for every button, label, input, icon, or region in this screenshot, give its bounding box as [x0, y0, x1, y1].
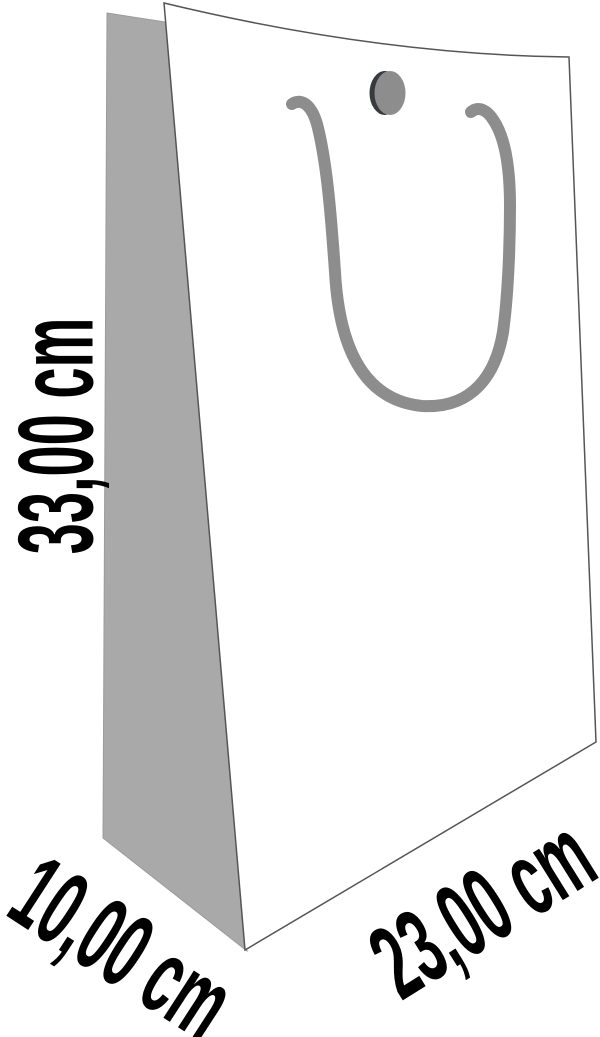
dimension-label-height: 33,00 cm: [3, 318, 109, 555]
grommet-face: [375, 71, 406, 115]
grommet-button: [370, 71, 406, 115]
diagram-canvas: 33,00 cm 10,00 cm 23,00 cm: [0, 0, 600, 1037]
